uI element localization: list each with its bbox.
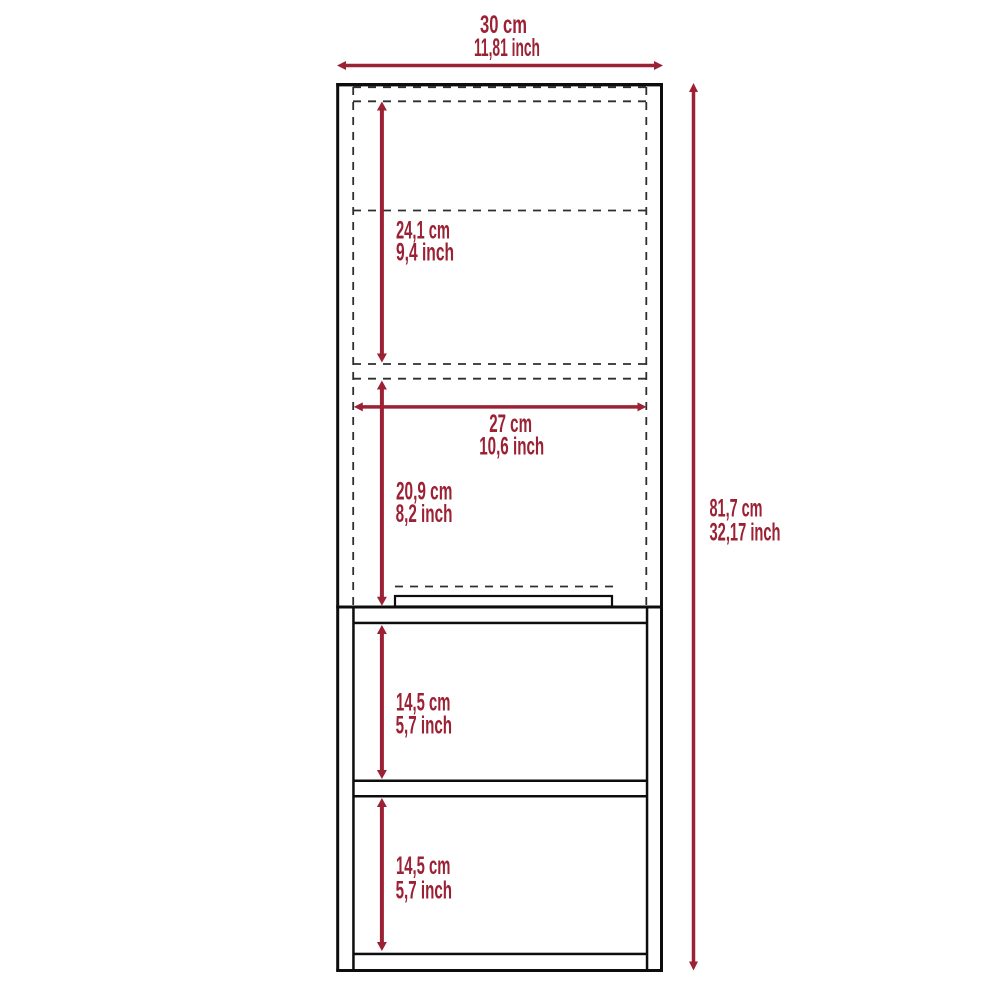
svg-text:32,17 inch: 32,17 inch bbox=[710, 519, 781, 547]
svg-text:9,4 inch: 9,4 inch bbox=[396, 239, 454, 267]
svg-text:5,7 inch: 5,7 inch bbox=[396, 712, 452, 740]
svg-text:5,7 inch: 5,7 inch bbox=[396, 876, 452, 904]
svg-text:11,81 inch: 11,81 inch bbox=[474, 34, 540, 62]
svg-text:8,2 inch: 8,2 inch bbox=[396, 500, 453, 528]
svg-text:10,6 inch: 10,6 inch bbox=[479, 432, 544, 460]
